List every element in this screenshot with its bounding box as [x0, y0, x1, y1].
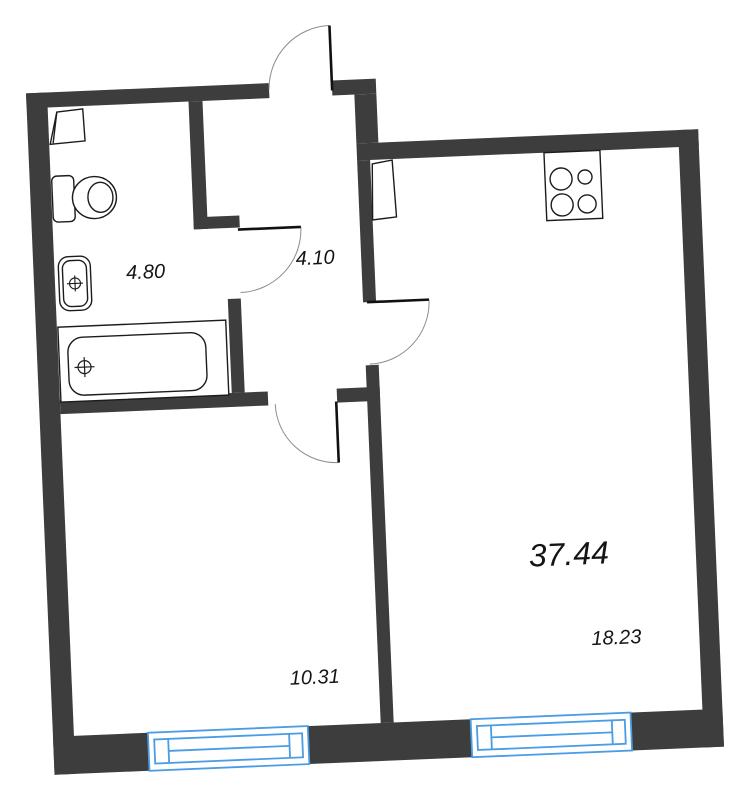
entrance-door-arc [266, 26, 331, 90]
wall-bath-east-jog [193, 216, 239, 230]
bathroom-area-label: 4.80 [126, 261, 166, 285]
hallway-area-label: 4.10 [295, 247, 335, 271]
toilet [52, 174, 118, 223]
bathroom-door-arc [238, 227, 304, 293]
bathtub [58, 320, 229, 402]
living-room-door-arc [367, 300, 432, 365]
plan-rotated-group: 4.80 4.10 10.31 18.23 37.44 [24, 10, 724, 774]
kitchen-fixtures [370, 150, 603, 228]
bathroom-door-leaf [238, 227, 301, 230]
toilet-bowl-inner [87, 182, 113, 213]
wall-kitchen-top [356, 129, 698, 160]
wall-bottom-b [308, 719, 472, 764]
entrance-door-leaf [329, 26, 332, 91]
living-kitchen-area-label: 18.23 [591, 626, 642, 650]
wall-bottom-c [630, 709, 724, 751]
wall-top-left [26, 83, 269, 108]
wall-bath-east-upper [189, 101, 208, 229]
living-room-window [471, 713, 632, 758]
bedroom-window [148, 726, 309, 771]
sink [58, 256, 92, 311]
wall-bottom-a [53, 733, 150, 775]
wall-entry-step [354, 94, 378, 144]
stove [544, 150, 603, 220]
wall-right [678, 129, 724, 747]
floor-plan-page: 4.80 4.10 10.31 18.23 37.44 [0, 0, 750, 800]
floor-plan: 4.80 4.10 10.31 18.23 37.44 [0, 0, 750, 800]
bedroom-door-arc [275, 402, 339, 466]
wall-top-entry [332, 79, 377, 96]
ventilation-shaft [370, 160, 396, 220]
bedroom-area-label: 10.31 [289, 666, 340, 690]
wall-bath-east-lower [228, 299, 245, 393]
total-area-label: 37.44 [528, 534, 610, 573]
living-room-door-leaf [367, 300, 429, 303]
wall-west-lower [366, 365, 394, 723]
bathtub-inner [67, 332, 207, 396]
bedroom-door-leaf [336, 402, 339, 463]
